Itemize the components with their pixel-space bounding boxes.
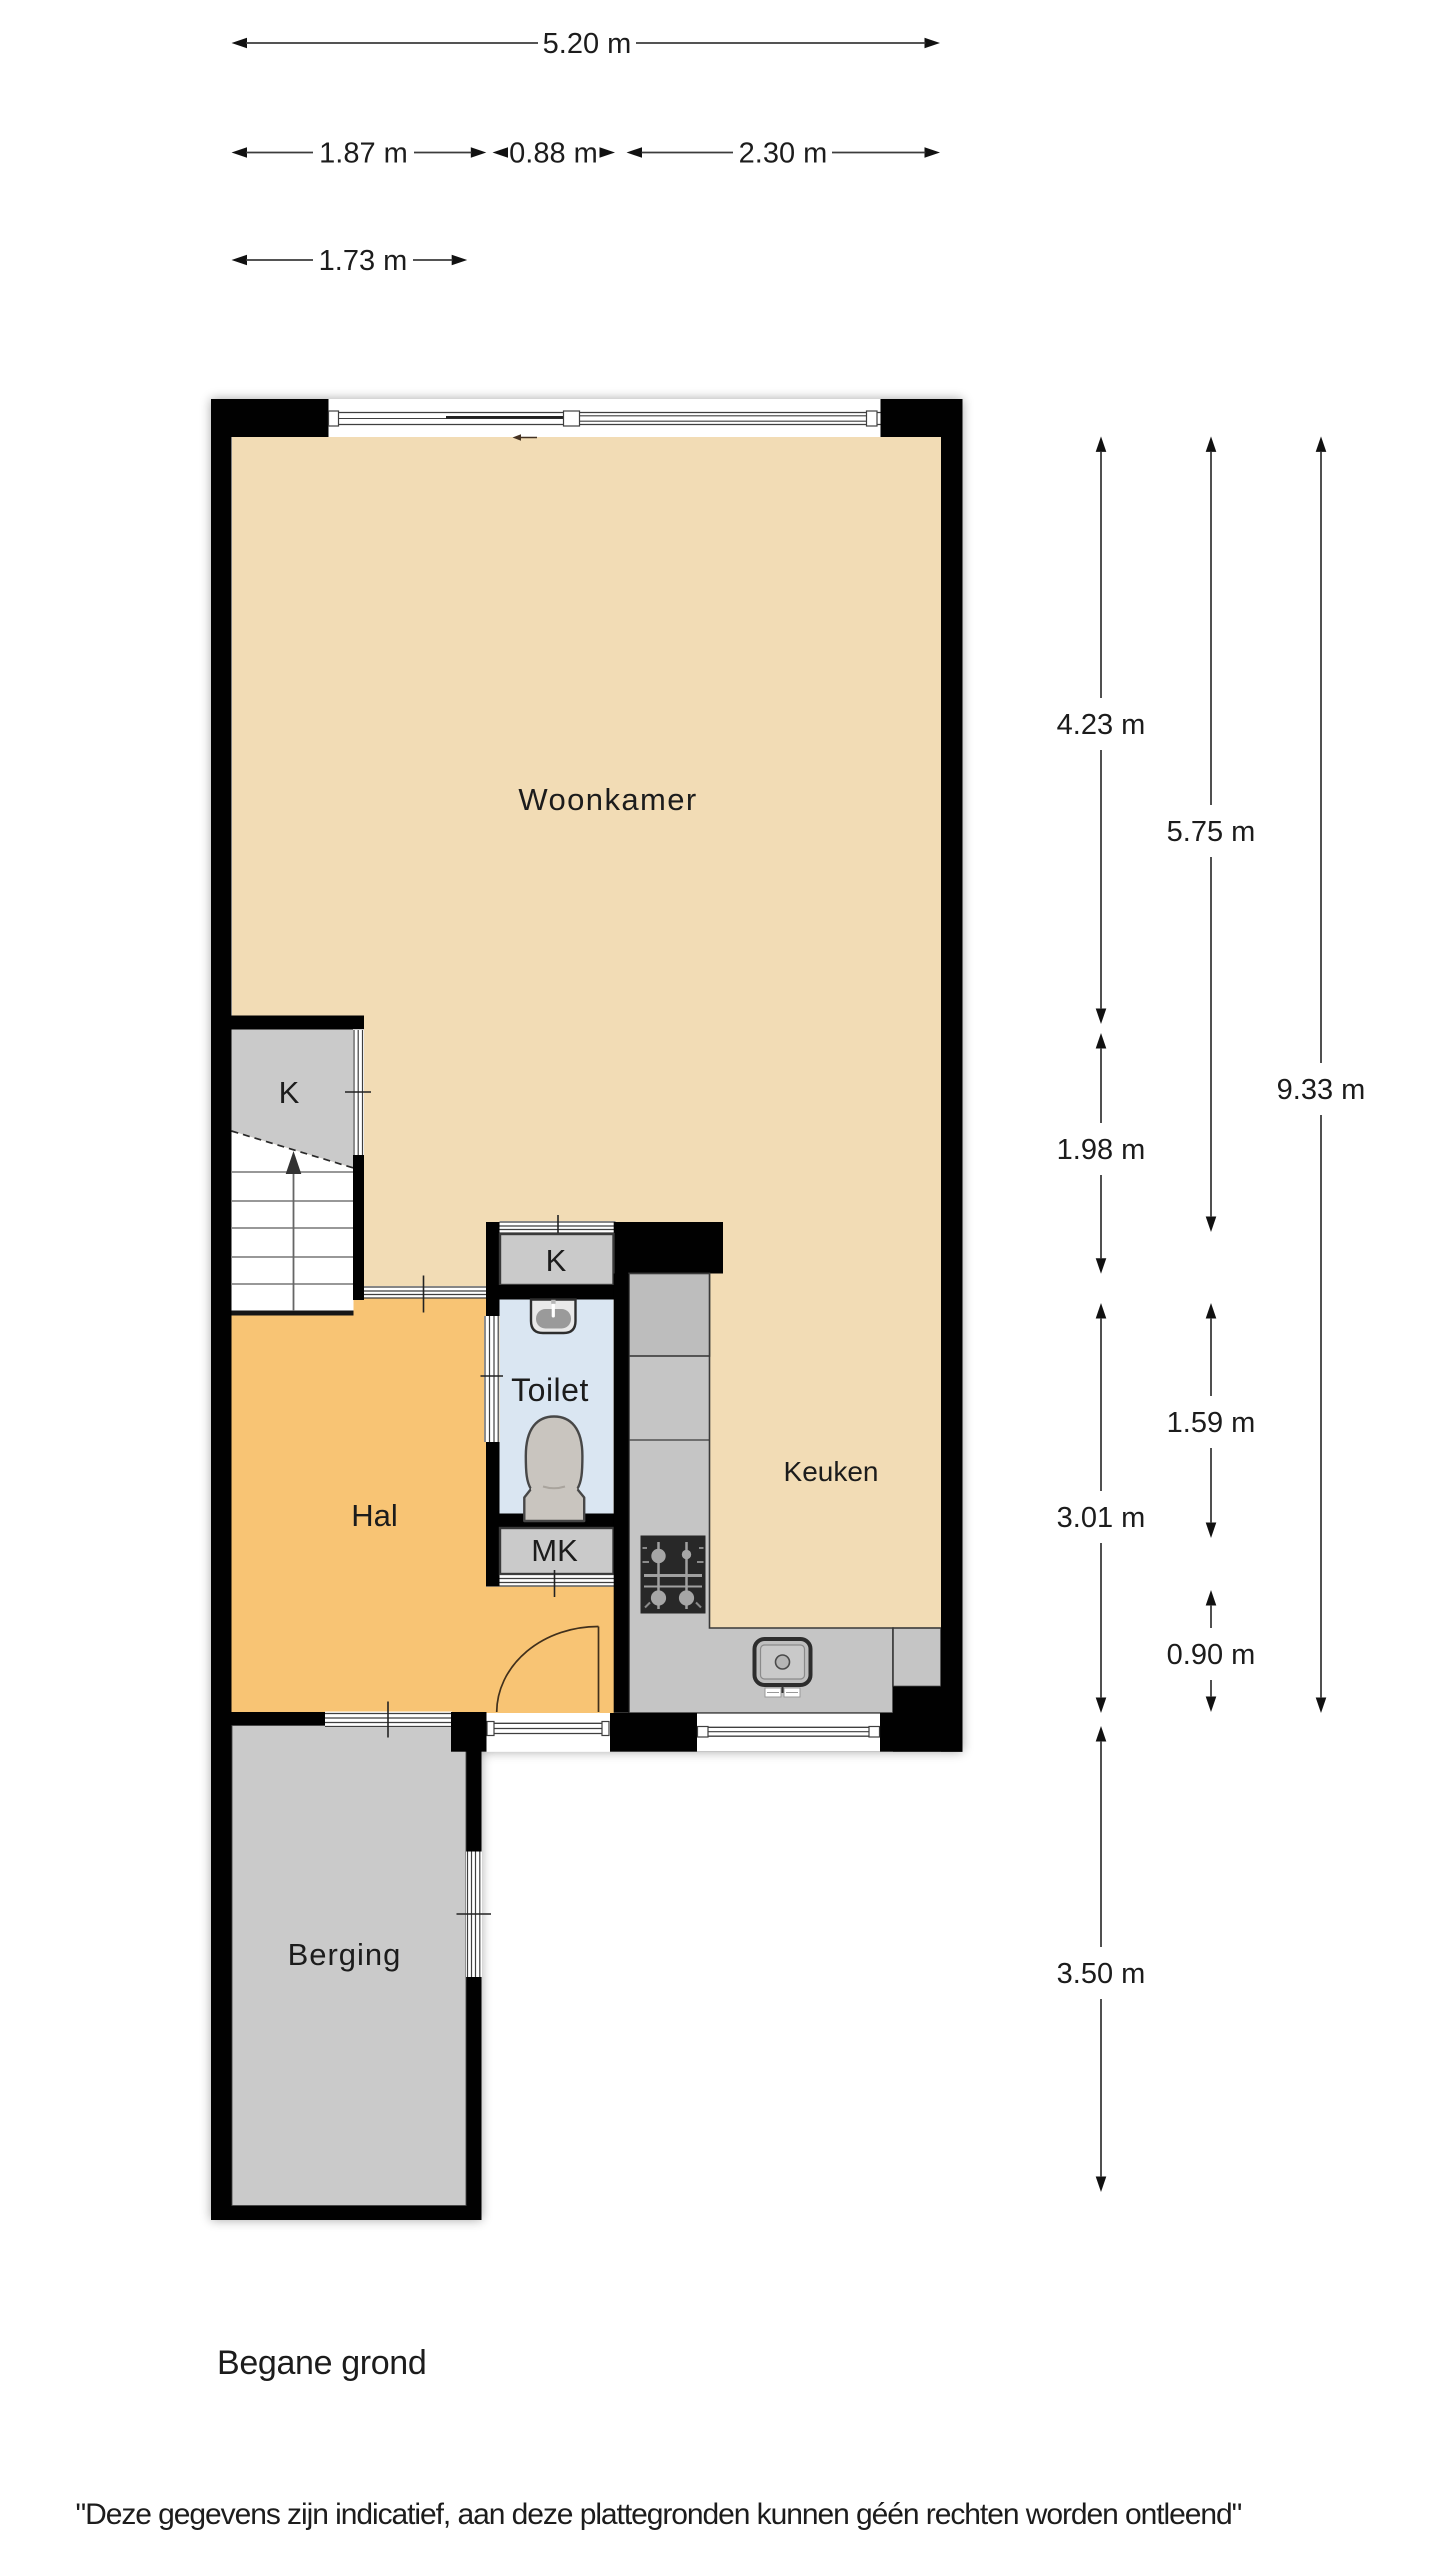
svg-text:4.23 m: 4.23 m xyxy=(1057,709,1146,741)
svg-text:9.33 m: 9.33 m xyxy=(1277,1074,1366,1106)
svg-text:5.75 m: 5.75 m xyxy=(1167,816,1256,848)
svg-text:1.98 m: 1.98 m xyxy=(1057,1134,1146,1166)
svg-text:"Deze gegevens zijn indicatief: "Deze gegevens zijn indicatief, aan deze… xyxy=(76,2498,1242,2531)
svg-text:1.73 m: 1.73 m xyxy=(319,245,408,277)
svg-text:MK: MK xyxy=(531,1533,578,1568)
svg-text:Toilet: Toilet xyxy=(511,1372,589,1408)
svg-text:Berging: Berging xyxy=(288,1937,402,1972)
svg-text:Hal: Hal xyxy=(351,1498,398,1533)
svg-text:1.59 m: 1.59 m xyxy=(1167,1407,1256,1439)
svg-text:0.88 m: 0.88 m xyxy=(509,138,598,170)
svg-text:0.90 m: 0.90 m xyxy=(1167,1639,1256,1671)
svg-text:Woonkamer: Woonkamer xyxy=(518,782,697,817)
svg-text:Keuken: Keuken xyxy=(784,1456,879,1487)
svg-text:3.01 m: 3.01 m xyxy=(1057,1502,1146,1534)
svg-text:Begane grond: Begane grond xyxy=(217,2344,426,2382)
svg-text:3.50 m: 3.50 m xyxy=(1057,1958,1146,1990)
svg-text:5.20 m: 5.20 m xyxy=(543,28,632,60)
svg-text:K: K xyxy=(546,1243,567,1278)
svg-text:2.30 m: 2.30 m xyxy=(739,138,828,170)
svg-text:1.87 m: 1.87 m xyxy=(319,138,408,170)
svg-text:K: K xyxy=(279,1075,300,1110)
